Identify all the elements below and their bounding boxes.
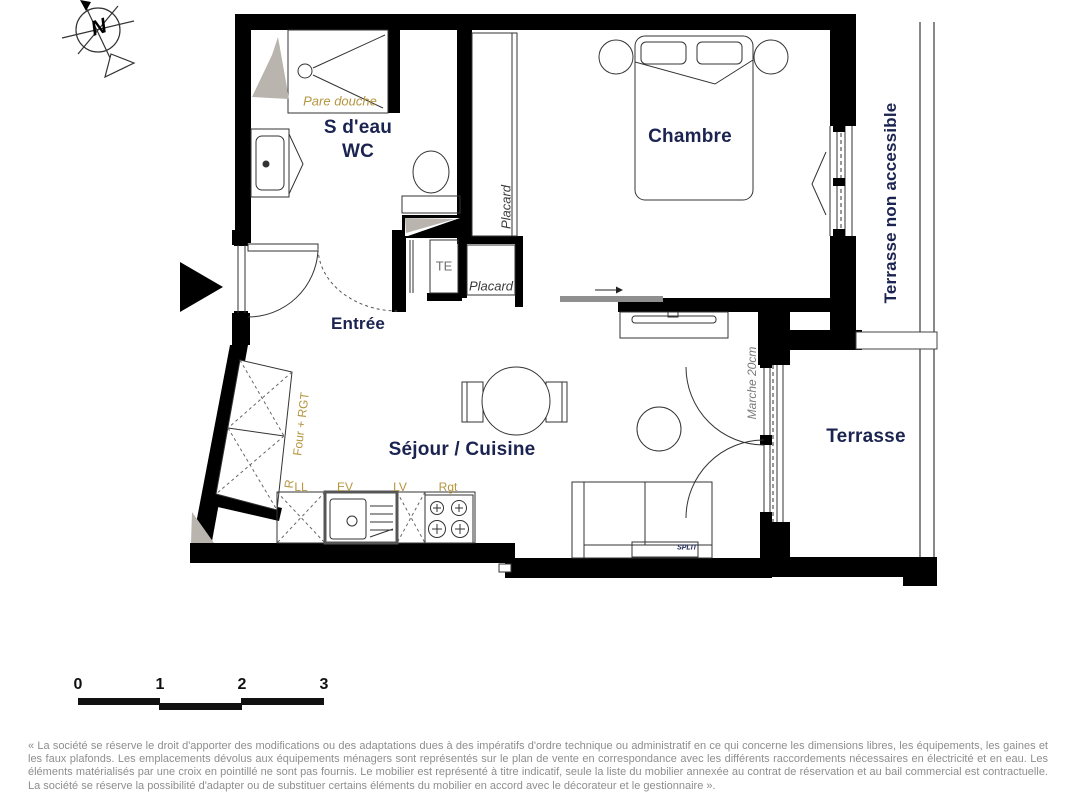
room-label-bedroom: Chambre bbox=[648, 126, 732, 148]
annotation-rgt: Rgt bbox=[439, 480, 458, 494]
annotation-ll: LL bbox=[294, 480, 307, 494]
bedroom-window bbox=[812, 124, 858, 237]
bathroom-door-swing bbox=[318, 249, 397, 311]
terrace-railing bbox=[920, 22, 934, 557]
washbasin bbox=[251, 129, 303, 197]
scale-tick-2: 2 bbox=[238, 676, 247, 694]
annotation-te: TE bbox=[436, 259, 453, 274]
dining-table bbox=[462, 367, 567, 435]
annotation-split: SPLIT bbox=[677, 545, 697, 552]
scale-tick-0: 0 bbox=[74, 676, 83, 694]
annotation-lv: LV bbox=[393, 480, 407, 494]
step-notch bbox=[499, 564, 511, 572]
annotation-marche: Marche 20cm bbox=[745, 347, 759, 420]
room-label-terrace: Terrasse bbox=[826, 426, 905, 448]
room-label-entry: Entrée bbox=[331, 314, 385, 334]
nightstand-left bbox=[599, 40, 633, 74]
entry-arrow bbox=[180, 262, 223, 312]
balcony-overhang bbox=[856, 332, 937, 349]
bed bbox=[635, 36, 753, 200]
annotation-placard-small: Placard bbox=[469, 279, 513, 294]
scale-bar-graphic bbox=[78, 698, 324, 710]
tv-console bbox=[620, 312, 728, 338]
coffee-table bbox=[637, 407, 681, 451]
entry-door-leaf bbox=[248, 244, 318, 251]
room-label-living: Séjour / Cuisine bbox=[389, 439, 536, 461]
bathroom-label-line1: S d'eau bbox=[324, 116, 392, 140]
legal-disclaimer: « La société se réserve le droit d'appor… bbox=[28, 740, 1048, 793]
kitchen-counter bbox=[277, 492, 475, 543]
scale-tick-3: 3 bbox=[320, 676, 329, 694]
cooktop bbox=[425, 495, 473, 543]
terrace-french-door bbox=[686, 358, 788, 522]
sink bbox=[325, 492, 397, 543]
toilet bbox=[402, 151, 463, 238]
sliding-door bbox=[560, 287, 663, 303]
annotation-ev: EV bbox=[337, 480, 353, 494]
annotation-pare-douche: Pare douche bbox=[303, 94, 377, 109]
nightstand-right bbox=[754, 40, 788, 74]
bathroom-label-line2: WC bbox=[324, 140, 392, 164]
bedroom-furniture bbox=[599, 36, 788, 200]
floor-plan-page: { "plan": { "compass": { "label": "N" },… bbox=[0, 0, 1068, 800]
scale-tick-1: 1 bbox=[156, 676, 165, 694]
room-label-bathroom: S d'eau WC bbox=[324, 116, 392, 164]
room-label-terrace-upper: Terrasse non accessible bbox=[881, 103, 901, 304]
annotation-placard-tall: Placard bbox=[499, 185, 514, 229]
